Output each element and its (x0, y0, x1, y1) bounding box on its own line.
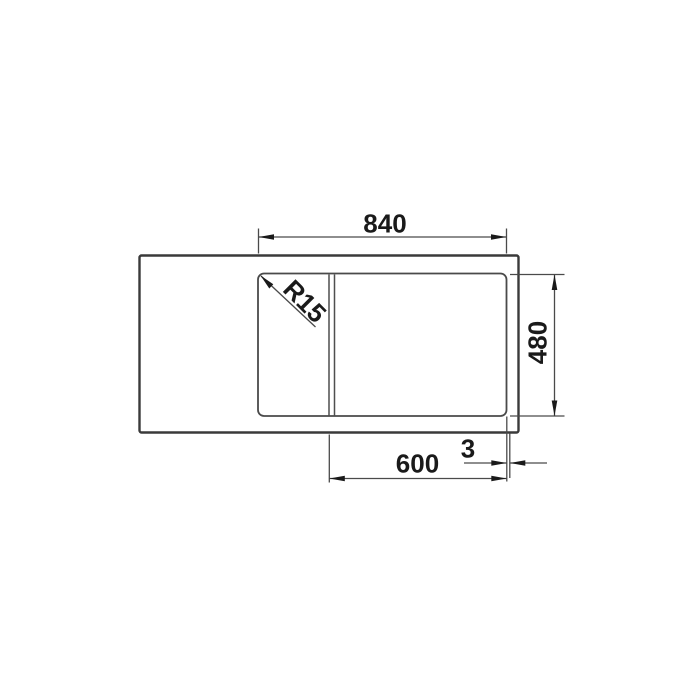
dim-600-arrow-right-icon (491, 476, 507, 482)
dim-3-arrow-left-icon (491, 460, 507, 466)
dimension-3: 3 (461, 434, 547, 479)
radius-callout: R15 (261, 274, 333, 329)
dim-3-arrow-right-icon (510, 460, 526, 466)
dim-840-arrow-right-icon (491, 234, 507, 240)
dim-600-label: 600 (396, 449, 439, 479)
dimension-600: 600 (329, 417, 507, 483)
dim-480-arrow-bottom-icon (552, 401, 558, 417)
dim-840-arrow-left-icon (259, 234, 275, 240)
dimension-840: 840 (259, 209, 507, 254)
drawing-canvas: 840 480 600 3 (0, 0, 700, 700)
dim-3-label: 3 (461, 434, 475, 464)
dim-600-arrow-left-icon (329, 476, 345, 482)
dim-480-label: 480 (523, 321, 553, 364)
radius-label: R15 (277, 274, 332, 329)
dim-480-arrow-top-icon (552, 275, 558, 291)
sink-dimension-drawing: 840 480 600 3 (0, 0, 700, 700)
dim-840-label: 840 (363, 209, 406, 239)
